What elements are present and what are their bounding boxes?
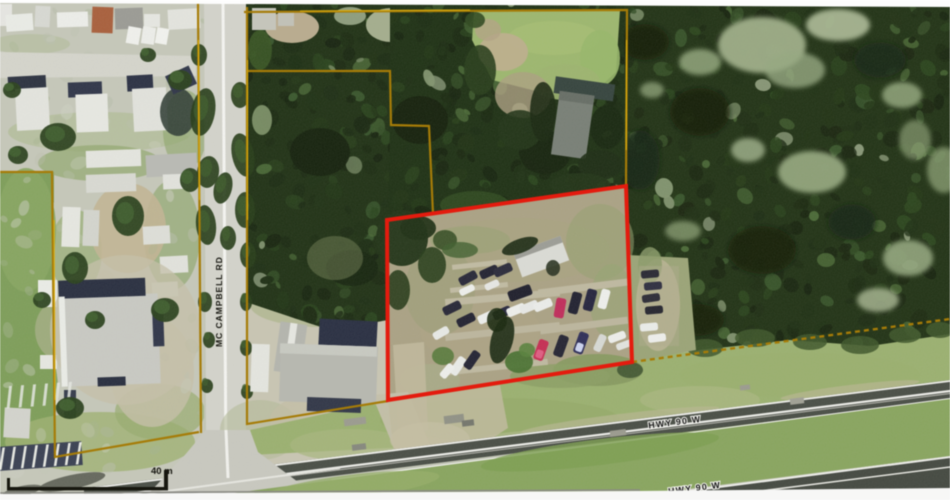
svg-text:40 m: 40 m <box>151 466 173 477</box>
svg-text:MC CAMPBELL RD: MC CAMPBELL RD <box>214 257 224 347</box>
